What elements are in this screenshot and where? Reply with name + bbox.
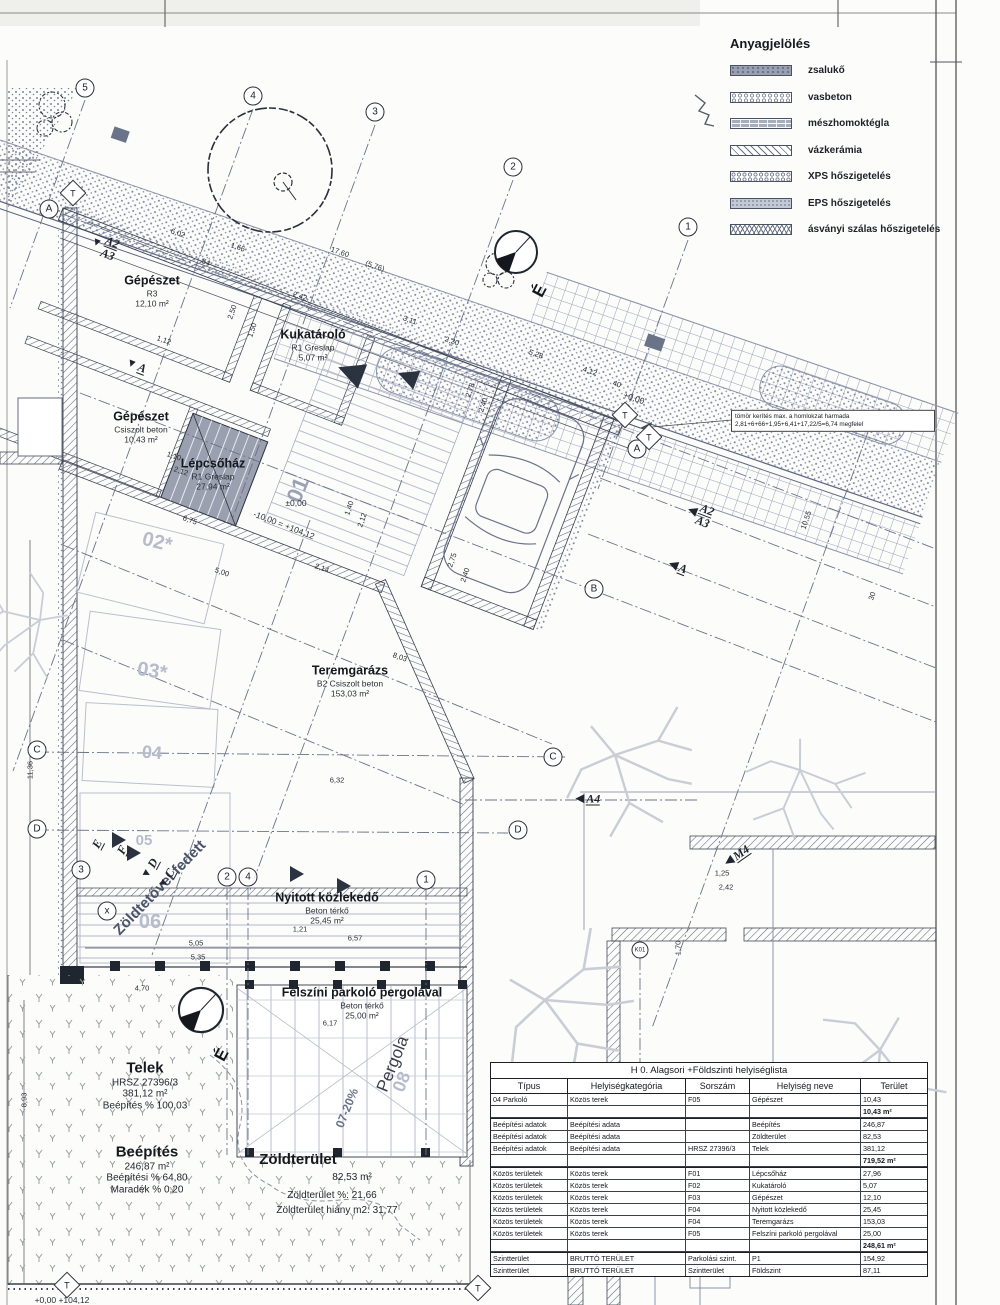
table-body: 04 Parkoló Közös terek F05 Gépészet 10,4… (491, 1094, 927, 1276)
site-plan-sheet: 6,021,665417,60(5,76)2,423,112,205,284,1… (0, 0, 1000, 1305)
table-row: Közös területek Közös terek F05 Felszíni… (491, 1228, 927, 1240)
legend-swatch (730, 224, 792, 235)
table-column-header: Sorszám (686, 1079, 750, 1093)
cell-kategoria (568, 1240, 686, 1251)
cell-nev (750, 1106, 861, 1117)
cell-sorszam: F02 (686, 1180, 750, 1191)
cell-tipus: Szintterület (491, 1265, 568, 1276)
legend-item: vázkerámia (730, 145, 962, 156)
cell-tipus: Beépítési adatok (491, 1119, 568, 1130)
cell-nev: Beépítés (750, 1119, 861, 1130)
legend-item: XPS hőszigetelés (730, 171, 962, 182)
cell-terulet: 248,61 m² (861, 1240, 927, 1251)
cell-kategoria: Beépítési adata (568, 1119, 686, 1130)
cell-terulet: 12,10 (861, 1192, 927, 1203)
cell-tipus: Közös területek (491, 1204, 568, 1215)
cell-nev: Zöldterület (750, 1131, 861, 1142)
wall-left (63, 208, 77, 980)
cell-nev: Nyitott közlekedő (750, 1204, 861, 1215)
room-list-table: H 0. Alagsori +Földszinti helyiséglista … (490, 1062, 928, 1277)
cell-kategoria: BRUTTÓ TERÜLET (568, 1253, 686, 1264)
cell-kategoria: Közös terek (568, 1192, 686, 1203)
cell-terulet: 381,12 (861, 1143, 927, 1154)
cell-terulet: 10,43 m² (861, 1106, 927, 1117)
cell-sorszam: F05 (686, 1094, 750, 1105)
table-row: 04 Parkoló Közös terek F05 Gépészet 10,4… (491, 1094, 927, 1106)
cell-terulet: 719,52 m² (861, 1155, 927, 1166)
legend-item: ásványi szálas hőszigetelés (730, 224, 962, 235)
north-arrow-icon (495, 231, 537, 273)
cell-terulet: 87,11 (861, 1265, 927, 1276)
table-row: Beépítési adatok Beépítési adata Zöldter… (491, 1131, 927, 1143)
cell-terulet: 25,00 (861, 1228, 927, 1239)
cell-nev: P1 (750, 1253, 861, 1264)
cell-sorszam: F05 (686, 1228, 750, 1239)
pergola (237, 980, 467, 1157)
table-column-header: Helyiség neve (750, 1079, 861, 1093)
cell-sorszam: F03 (686, 1192, 750, 1203)
cell-terulet: 27,96 (861, 1168, 927, 1179)
table-title: H 0. Alagsori +Földszinti helyiséglista (491, 1063, 927, 1079)
legend-title: Anyagjelölés (730, 36, 962, 51)
cell-kategoria: Közös terek (568, 1168, 686, 1179)
table-row: Szintterület BRUTTÓ TERÜLET Szintterület… (491, 1265, 927, 1276)
cell-tipus: 04 Parkoló (491, 1094, 568, 1105)
walkway (60, 888, 467, 984)
cell-sorszam: F01 (686, 1168, 750, 1179)
cell-terulet: 153,03 (861, 1216, 927, 1227)
table-row: Beépítési adatok Beépítési adata Beépíté… (491, 1118, 927, 1131)
cell-tipus: Közös területek (491, 1168, 568, 1179)
cell-nev (750, 1155, 861, 1166)
cell-tipus: Közös területek (491, 1228, 568, 1239)
cell-nev: Gépészet (750, 1192, 861, 1203)
cell-nev: Földszint (750, 1265, 861, 1276)
cell-kategoria: BRUTTÓ TERÜLET (568, 1265, 686, 1276)
legend-swatch (730, 198, 792, 209)
table-row: Közös területek Közös terek F02 Kukatáro… (491, 1180, 927, 1192)
legend-swatch (730, 65, 792, 76)
table-column-header: Típus (491, 1079, 568, 1093)
cell-kategoria: Beépítési adata (568, 1143, 686, 1154)
cell-tipus: Közös területek (491, 1216, 568, 1227)
table-row: Közös területek Közös terek F04 Nyitott … (491, 1204, 927, 1216)
cell-sorszam: F04 (686, 1216, 750, 1227)
cell-sorszam: Parkolási szint. (686, 1253, 750, 1264)
legend-swatch (730, 92, 792, 103)
cell-tipus: Beépítési adatok (491, 1143, 568, 1154)
cell-tipus: Beépítési adatok (491, 1131, 568, 1142)
cell-sorszam (686, 1119, 750, 1130)
table-row: 719,52 m² (491, 1155, 927, 1167)
legend-item: zsalukő (730, 65, 962, 76)
table-row: Közös területek Közös terek F03 Gépészet… (491, 1192, 927, 1204)
cell-nev: Felszíni parkoló pergolával (750, 1228, 861, 1239)
table-row: Beépítési adatok Beépítési adata HRSZ 27… (491, 1143, 927, 1155)
cell-nev: Lépcsőház (750, 1168, 861, 1179)
table-header: TípusHelyiségkategóriaSorszámHelyiség ne… (491, 1079, 927, 1094)
table-row: 10,43 m² (491, 1106, 927, 1118)
cell-sorszam: HRSZ 27396/3 (686, 1143, 750, 1154)
cell-terulet: 246,87 (861, 1119, 927, 1130)
legend: Anyagjelölés zsalukő vasbeton mészhomokt… (730, 36, 962, 251)
legend-label: EPS hőszigetelés (808, 198, 891, 209)
table-row: Közös területek Közös terek F01 Lépcsőhá… (491, 1167, 927, 1180)
tree-large (208, 108, 332, 232)
legend-item: mészhomoktégla (730, 118, 962, 129)
cell-kategoria: Közös terek (568, 1216, 686, 1227)
table-row: 248,61 m² (491, 1240, 927, 1252)
cell-terulet: 5,07 (861, 1180, 927, 1191)
north-arrow-icon (179, 988, 223, 1032)
legend-swatch (730, 145, 792, 156)
cell-sorszam (686, 1106, 750, 1117)
cell-tipus: Közös területek (491, 1192, 568, 1203)
cell-kategoria: Beépítési adata (568, 1131, 686, 1142)
cell-tipus (491, 1155, 568, 1166)
cell-terulet: 82,53 (861, 1131, 927, 1142)
legend-label: zsalukő (808, 65, 845, 76)
cell-kategoria (568, 1106, 686, 1117)
cell-sorszam (686, 1131, 750, 1142)
cell-kategoria: Közös terek (568, 1094, 686, 1105)
legend-swatch (730, 118, 792, 129)
cell-nev: Telek (750, 1143, 861, 1154)
legend-item: vasbeton (730, 92, 962, 103)
cell-kategoria: Közös terek (568, 1204, 686, 1215)
cell-tipus: Szintterület (491, 1253, 568, 1264)
cell-sorszam (686, 1155, 750, 1166)
legend-label: mészhomoktégla (808, 118, 889, 129)
legend-label: XPS hőszigetelés (808, 171, 891, 182)
cell-sorszam: Szintterület (686, 1265, 750, 1276)
cell-tipus: Közös területek (491, 1180, 568, 1191)
cell-tipus (491, 1240, 568, 1251)
cell-kategoria (568, 1155, 686, 1166)
table-row: Közös területek Közös terek F04 Teremgar… (491, 1216, 927, 1228)
cell-terulet: 25,45 (861, 1204, 927, 1215)
table-row: Szintterület BRUTTÓ TERÜLET Parkolási sz… (491, 1252, 927, 1265)
cell-kategoria: Közös terek (568, 1228, 686, 1239)
cell-nev: Kukatároló (750, 1180, 861, 1191)
cell-nev: Gépészet (750, 1094, 861, 1105)
table-column-header: Helyiségkategória (568, 1079, 686, 1093)
cell-tipus (491, 1106, 568, 1117)
legend-label: vasbeton (808, 92, 852, 103)
cell-terulet: 154,92 (861, 1253, 927, 1264)
legend-swatch (730, 171, 792, 182)
cell-kategoria: Közös terek (568, 1180, 686, 1191)
table-column-header: Terület (861, 1079, 927, 1093)
cell-terulet: 10,43 (861, 1094, 927, 1105)
cell-nev: Teremgarázs (750, 1216, 861, 1227)
legend-label: ásványi szálas hőszigetelés (808, 224, 940, 235)
cell-nev (750, 1240, 861, 1251)
legend-label: vázkerámia (808, 145, 862, 156)
cell-sorszam (686, 1240, 750, 1251)
legend-item: EPS hőszigetelés (730, 198, 962, 209)
cell-sorszam: F04 (686, 1204, 750, 1215)
